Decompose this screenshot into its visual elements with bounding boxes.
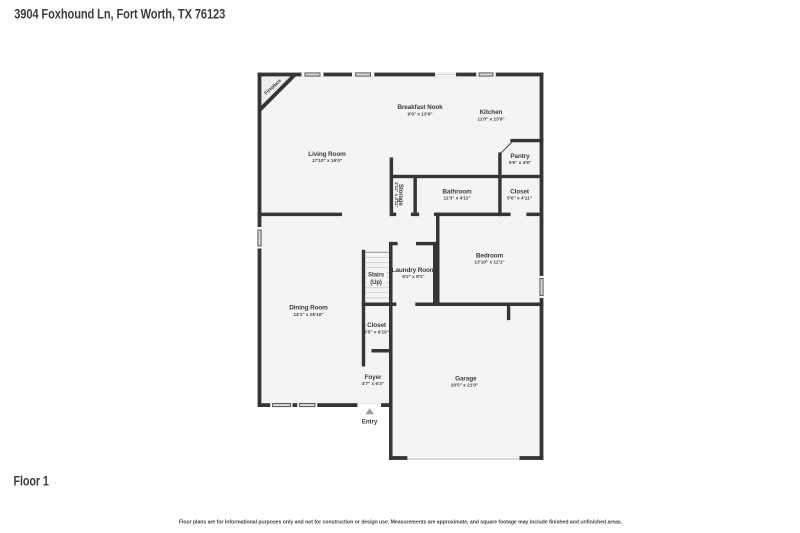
- svg-text:Closet: Closet: [510, 189, 530, 196]
- svg-text:17'10" x 19'0": 17'10" x 19'0": [312, 158, 342, 164]
- svg-text:Laundry Room: Laundry Room: [392, 267, 436, 274]
- svg-text:13'10" x 12'1": 13'10" x 12'1": [474, 259, 504, 265]
- svg-text:2'11" x 4'11": 2'11" x 4'11": [394, 182, 399, 207]
- svg-text:Entry: Entry: [362, 419, 378, 426]
- svg-text:Bathroom: Bathroom: [442, 189, 472, 196]
- svg-text:Living Room: Living Room: [308, 151, 346, 158]
- svg-text:Foyer: Foyer: [365, 374, 382, 381]
- svg-text:Breakfast Nook: Breakfast Nook: [397, 104, 443, 111]
- svg-text:3'5" x 6'10": 3'5" x 6'10": [364, 330, 389, 336]
- svg-text:Floor plans are for informatio: Floor plans are for informational purpos…: [179, 519, 623, 525]
- svg-text:4'7" x 6'3": 4'7" x 6'3": [362, 381, 384, 387]
- svg-text:11'3" x 4'11": 11'3" x 4'11": [444, 196, 471, 202]
- svg-text:14'1" x 25'10": 14'1" x 25'10": [293, 312, 323, 318]
- svg-text:Garage: Garage: [455, 376, 477, 383]
- svg-text:20'5" x 21'0": 20'5" x 21'0": [451, 383, 479, 389]
- svg-text:Kitchen: Kitchen: [480, 109, 503, 116]
- svg-text:5'6" x 4'8": 5'6" x 4'8": [509, 160, 531, 166]
- svg-text:Pantry: Pantry: [510, 153, 530, 160]
- svg-text:(Up): (Up): [370, 280, 382, 286]
- svg-text:3904 Foxhound Ln, Fort Worth,: 3904 Foxhound Ln, Fort Worth, TX 76123: [14, 7, 225, 23]
- svg-text:5'6" x 4'11": 5'6" x 4'11": [507, 196, 532, 202]
- svg-text:6'2" x 8'1": 6'2" x 8'1": [402, 274, 424, 280]
- svg-text:Stairs: Stairs: [368, 272, 385, 278]
- svg-text:Dining Room: Dining Room: [289, 305, 328, 312]
- svg-text:9'9" x 13'9": 9'9" x 13'9": [408, 112, 433, 118]
- svg-text:Floor 1: Floor 1: [14, 473, 49, 489]
- svg-text:11'0" x 13'9": 11'0" x 13'9": [477, 116, 504, 122]
- svg-text:Closet: Closet: [367, 322, 387, 329]
- svg-text:Bedroom: Bedroom: [476, 253, 504, 260]
